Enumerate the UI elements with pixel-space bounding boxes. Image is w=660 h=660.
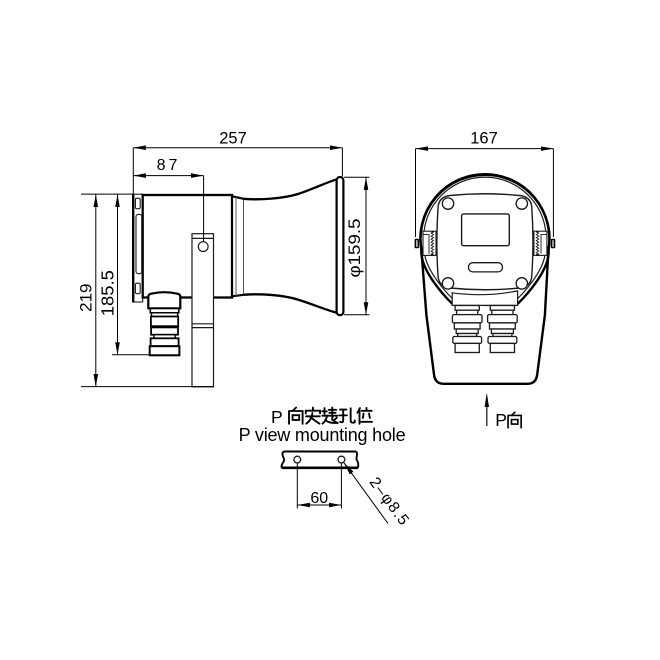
- svg-text:257: 257: [219, 130, 247, 148]
- svg-text:φ159.5: φ159.5: [346, 219, 364, 278]
- svg-text:P view mounting hole: P view mounting hole: [239, 425, 406, 445]
- svg-text:167: 167: [470, 130, 498, 148]
- svg-text:219: 219: [77, 284, 96, 312]
- svg-text:60: 60: [310, 490, 328, 507]
- svg-text:P: P: [271, 407, 283, 427]
- svg-text:185.5: 185.5: [98, 270, 118, 316]
- svg-text:87: 87: [157, 157, 181, 174]
- svg-text:P: P: [495, 410, 507, 430]
